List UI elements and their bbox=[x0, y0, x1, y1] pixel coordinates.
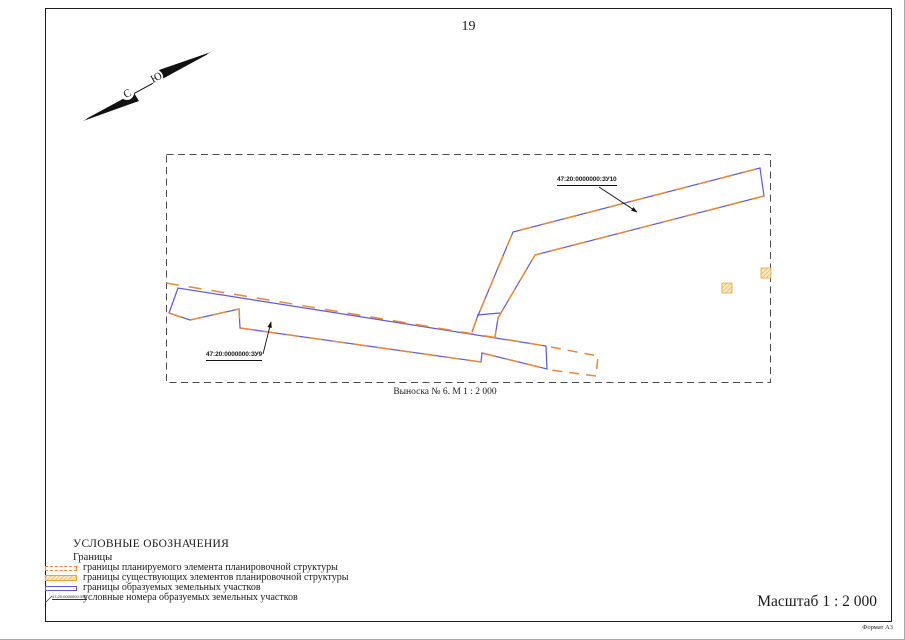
existing-boundary-swatch bbox=[45, 575, 77, 581]
scale-label: Масштаб 1 : 2 000 bbox=[737, 594, 877, 610]
planned-boundary-swatch bbox=[45, 566, 77, 571]
map-caption: Выноска № 6. М 1 : 2 000 bbox=[345, 388, 545, 398]
page-border bbox=[45, 8, 892, 622]
parcel-label-zu10: 47:20:0000000:ЗУ10 bbox=[557, 177, 617, 186]
sample-parcel-number: 47:20:0000000:ЗУ1 bbox=[52, 595, 87, 600]
formed-boundary-swatch bbox=[45, 586, 77, 591]
legend-item-numbers: 47:20:0000000:ЗУ1 условные номера образу… bbox=[45, 593, 545, 603]
parcel-number-swatch: 47:20:0000000:ЗУ1 bbox=[45, 593, 77, 603]
parcel-label-zu9: 47:20:0000000:ЗУ9 bbox=[206, 352, 262, 361]
legend-title: УСЛОВНЫЕ ОБОЗНАЧЕНИЯ bbox=[73, 539, 545, 551]
legend: УСЛОВНЫЕ ОБОЗНАЧЕНИЯ Границы границы пла… bbox=[45, 539, 545, 603]
page-number: 19 bbox=[45, 20, 892, 34]
sheet: 19 С Ю bbox=[0, 0, 905, 640]
format-label: Формат А3 bbox=[793, 625, 893, 632]
legend-item-label: условные номера образуемых земельных уча… bbox=[83, 593, 298, 603]
